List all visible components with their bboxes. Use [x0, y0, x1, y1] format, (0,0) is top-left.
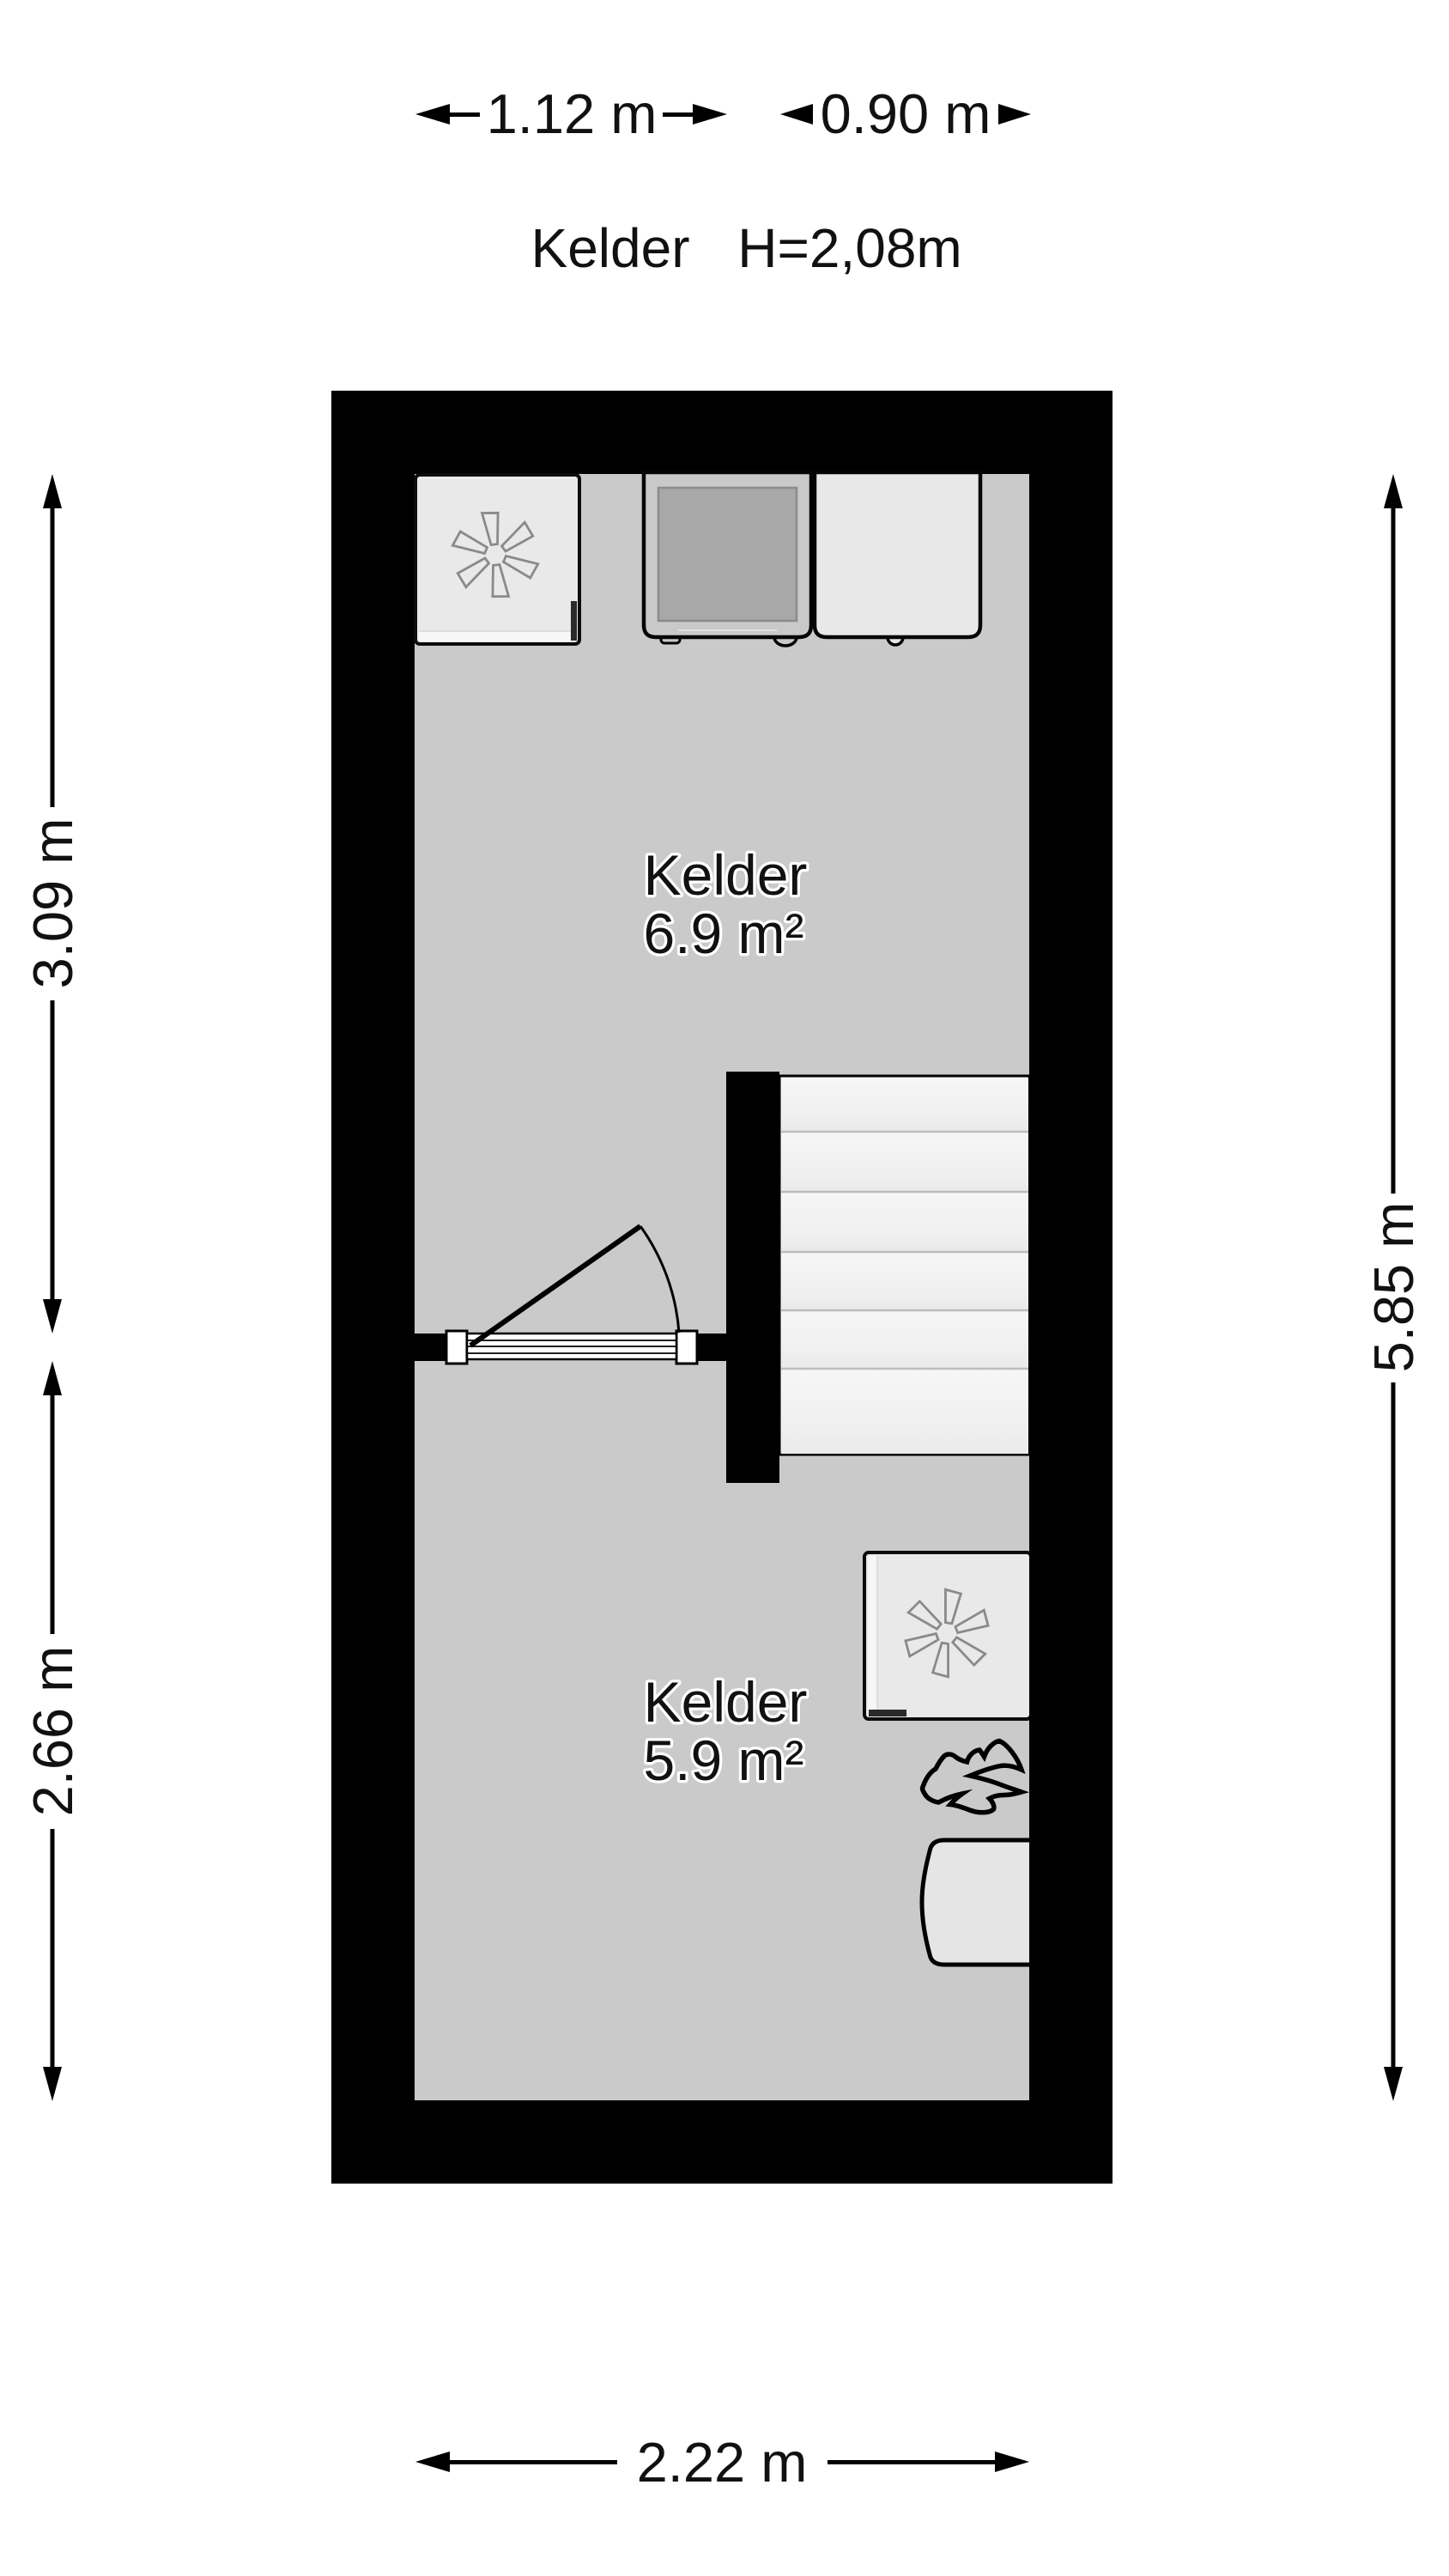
svg-text:2.66 m: 2.66 m [21, 1646, 84, 1817]
svg-text:5.9 m²: 5.9 m² [643, 1728, 803, 1792]
svg-text:1.12 m: 1.12 m [487, 82, 658, 145]
svg-text:6.9 m²: 6.9 m² [643, 902, 803, 965]
svg-text:2.22 m: 2.22 m [637, 2431, 808, 2494]
svg-text:Kelder: Kelder [644, 1670, 808, 1734]
svg-text:H=2,08m: H=2,08m [737, 217, 961, 279]
svg-text:Kelder: Kelder [531, 217, 690, 279]
svg-text:Kelder: Kelder [644, 843, 808, 907]
svg-text:5.85 m: 5.85 m [1362, 1202, 1425, 1373]
svg-text:3.09 m: 3.09 m [21, 818, 84, 989]
svg-text:0.90 m: 0.90 m [821, 82, 991, 145]
